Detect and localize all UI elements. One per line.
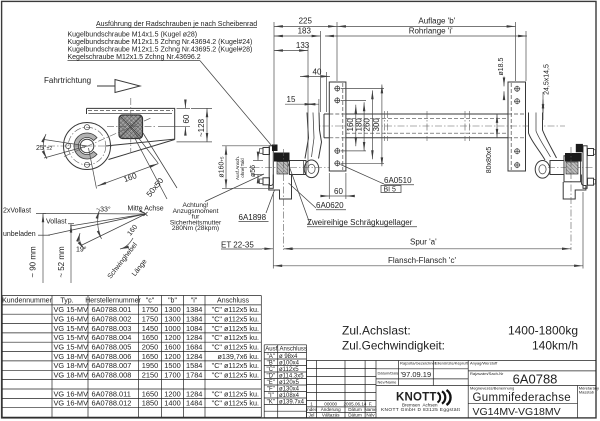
svg-text:6A0788.004: 6A0788.004 (92, 333, 132, 342)
svg-text:VG 16-MV: VG 16-MV (54, 399, 89, 408)
svg-text:Achsen: Achsen (423, 403, 439, 408)
svg-text:19°: 19° (76, 246, 87, 254)
svg-text:Fahrtrichtung: Fahrtrichtung (44, 76, 91, 85)
svg-text:"C" ø112x5 ku.: "C" ø112x5 ku. (212, 324, 259, 333)
svg-text:"E": "E" (267, 380, 275, 386)
svg-text:6A0620: 6A0620 (316, 201, 344, 210)
svg-text:6A0788.012: 6A0788.012 (92, 399, 132, 408)
svg-text:ø 98x4: ø 98x4 (279, 354, 298, 360)
svg-text:1300: 1300 (164, 305, 180, 314)
svg-text:Index: Index (306, 407, 318, 412)
svg-text:ohne Takl: ohne Takl (240, 158, 245, 177)
svg-text:"D": "D" (267, 373, 276, 379)
svg-text:Ausführung der Radschrauben: Ausführung der Radschrauben je nach Sche… (96, 21, 257, 28)
svg-text:1784: 1784 (186, 371, 202, 380)
svg-text:Rajzszám/Sach-Nr: Rajzszám/Sach-Nr (470, 371, 504, 376)
svg-text:Mitte Achse: Mitte Achse (128, 206, 164, 213)
svg-text:VG 18-MV: VG 18-MV (54, 361, 89, 370)
svg-text:Rajzolta/Gezeichnet: Rajzolta/Gezeichnet (400, 361, 437, 366)
svg-text:1200: 1200 (164, 352, 180, 361)
svg-text:VG 15-MV: VG 15-MV (54, 305, 89, 314)
svg-text:Név: Név (366, 413, 375, 418)
svg-text:6A0788.005: 6A0788.005 (92, 343, 132, 352)
svg-text:VG 16-MV: VG 16-MV (54, 315, 89, 324)
svg-text:280Nm (28kpm): 280Nm (28kpm) (172, 225, 219, 232)
svg-text:1950: 1950 (142, 361, 158, 370)
svg-text:"C" ø112x5 ku.: "C" ø112x5 ku. (212, 361, 259, 370)
svg-text:1: 1 (310, 401, 313, 406)
svg-text:Spur 'a': Spur 'a' (410, 238, 437, 247)
svg-text:"C" ø112x5 ku.: "C" ø112x5 ku. (212, 305, 259, 314)
svg-text:ø112x5: ø112x5 (279, 367, 299, 373)
svg-text:ø120x5: ø120x5 (279, 380, 300, 386)
svg-text:1750: 1750 (142, 305, 158, 314)
svg-text:~ 52 mm: ~ 52 mm (57, 246, 66, 278)
svg-text:1284: 1284 (186, 333, 202, 342)
svg-text:ø139.7x4: ø139.7x4 (279, 399, 305, 405)
svg-text:15: 15 (287, 95, 296, 104)
svg-text:Dátum: Dátum (348, 407, 362, 412)
svg-text:ø130x4: ø130x4 (279, 386, 300, 392)
svg-text:"i": "i" (191, 298, 198, 305)
svg-text:1484: 1484 (186, 399, 202, 408)
svg-text:60: 60 (334, 187, 343, 196)
svg-text:VG 18-MV: VG 18-MV (54, 371, 89, 380)
svg-text:"K": "K" (267, 399, 275, 405)
svg-text:80x80x5: 80x80x5 (486, 147, 493, 174)
svg-text:Anschluss: Anschluss (217, 298, 249, 305)
svg-text:"C" ø112x5 ku.: "C" ø112x5 ku. (212, 399, 259, 408)
svg-text:6A0788.011: 6A0788.011 (92, 389, 131, 398)
svg-text:1650: 1650 (142, 389, 158, 398)
svg-text:6A0788.001: 6A0788.001 (92, 305, 132, 314)
svg-text:1000: 1000 (164, 324, 180, 333)
svg-text:ø108x4: ø108x4 (279, 393, 300, 399)
svg-text:Ellenörizte/Képruft: Ellenörizte/Képruft (435, 361, 469, 366)
svg-text:6A0788.008: 6A0788.008 (92, 371, 132, 380)
svg-text:2150: 2150 (142, 371, 158, 380)
svg-text:VG14MV-VG18MV: VG14MV-VG18MV (473, 406, 561, 418)
svg-text:2050: 2050 (142, 343, 158, 352)
svg-text:24,5x14,5: 24,5x14,5 (544, 64, 551, 95)
svg-text:2005.06.14: 2005.06.14 (344, 401, 367, 406)
svg-text:133: 133 (296, 41, 310, 50)
svg-text:BI 5: BI 5 (384, 187, 397, 194)
svg-text:"b": "b" (168, 298, 177, 305)
svg-text:Anyag/Werstoff: Anyag/Werstoff (470, 361, 498, 366)
svg-text:"B": "B" (267, 360, 275, 366)
svg-text:6A0788: 6A0788 (513, 372, 558, 387)
svg-text:1500: 1500 (164, 361, 180, 370)
svg-text:"C": "C" (267, 367, 276, 373)
svg-text:Typ.: Typ. (60, 298, 73, 305)
svg-text:Megnevezés/Benennung: Megnevezés/Benennung (470, 386, 514, 391)
svg-text:Flansch-Flansch 'c': Flansch-Flansch 'c' (388, 256, 456, 265)
svg-text:1384: 1384 (186, 305, 202, 314)
svg-text:Dátum/Date: Dátum/Date (378, 371, 400, 376)
svg-text:1650: 1650 (142, 333, 158, 342)
svg-text:Auflage 'b': Auflage 'b' (418, 17, 455, 26)
svg-text:140km/h: 140km/h (532, 339, 578, 353)
svg-text:"F": "F" (267, 386, 275, 392)
svg-text:6A0788.003: 6A0788.003 (92, 324, 132, 333)
svg-text:VG 16-MV: VG 16-MV (54, 389, 89, 398)
svg-text:6A0788.006: 6A0788.006 (92, 352, 132, 361)
svg-text:6A0788.002: 6A0788.002 (92, 315, 132, 324)
svg-text:1450: 1450 (142, 324, 158, 333)
svg-text:1284: 1284 (186, 352, 202, 361)
svg-text:1200: 1200 (164, 333, 180, 342)
svg-text:6A0510: 6A0510 (384, 176, 412, 185)
svg-text:Név/Name: Név/Name (378, 379, 398, 384)
svg-text:ø100x4: ø100x4 (279, 360, 300, 366)
svg-text:unbeladen: unbeladen (3, 231, 36, 238)
svg-text:1700: 1700 (164, 371, 180, 380)
svg-text:260: 260 (363, 118, 372, 132)
svg-text:"C" ø112x5 ku.: "C" ø112x5 ku. (212, 389, 259, 398)
svg-text:Kugelbundschraube M14x1.5 (K: Kugelbundschraube M14x1.5 (Kugel ø28) (68, 31, 198, 38)
svg-text:1084: 1084 (186, 324, 202, 333)
svg-text:225: 225 (299, 17, 313, 26)
svg-text:Zweireihige Schrägkugellager: Zweireihige Schrägkugellager (307, 218, 413, 227)
svg-text:Name: Name (364, 407, 377, 412)
svg-text:1750: 1750 (142, 315, 158, 324)
svg-text:VG 18-MV: VG 18-MV (54, 352, 89, 361)
svg-text:ø139,7x6 ku.: ø139,7x6 ku. (217, 352, 259, 361)
svg-text:"C" ø112x5 ku.: "C" ø112x5 ku. (212, 315, 259, 324)
svg-text:Herstellernummer: Herstellernummer (85, 298, 141, 305)
svg-text:F.: F. (369, 401, 373, 406)
svg-text:Dátum: Dátum (348, 413, 362, 418)
svg-text:1650: 1650 (142, 352, 158, 361)
svg-text:"C" ø112x5 ku.: "C" ø112x5 ku. (212, 343, 259, 352)
svg-text:300: 300 (372, 118, 381, 132)
svg-text:ET 22-35: ET 22-35 (221, 240, 254, 249)
svg-text:1400: 1400 (164, 399, 180, 408)
svg-text:1384: 1384 (186, 315, 202, 324)
svg-text:Jel: Jel (309, 413, 315, 418)
svg-text:1300: 1300 (164, 315, 180, 324)
svg-text:"C" ø112x5 ku.: "C" ø112x5 ku. (212, 333, 259, 342)
svg-text:VG 15-MV: VG 15-MV (54, 333, 89, 342)
svg-text:Gummifederachse: Gummifederachse (473, 392, 571, 404)
svg-text:"I": "I" (268, 393, 274, 399)
svg-text:Váltazás: Váltazás (322, 413, 340, 418)
svg-text:Kegelschraube M12x1.5 Zchng: Kegelschraube M12x1.5 Zchng Nr.43696.2 (68, 54, 201, 61)
svg-text:Anschluss: Anschluss (280, 347, 307, 353)
svg-text:~128: ~128 (197, 118, 206, 137)
svg-text:25°±2: 25°±2 (36, 144, 52, 152)
svg-text:VG 15-MV: VG 15-MV (54, 324, 89, 333)
svg-text:1684: 1684 (186, 343, 202, 352)
svg-text:1400-1800kg: 1400-1800kg (508, 324, 578, 338)
svg-text:ø18.5: ø18.5 (498, 57, 505, 75)
svg-text:Zul.Achslast:: Zul.Achslast: (342, 324, 411, 338)
svg-text:~33°: ~33° (96, 206, 111, 214)
svg-text:1284: 1284 (186, 389, 202, 398)
svg-text:Rohrlange 'i': Rohrlange 'i' (409, 26, 453, 35)
svg-text:KNOTT GmbH D 83125 Eggstä: KNOTT GmbH D 83125 Eggstätt (381, 407, 461, 413)
svg-text:VG 15-MV: VG 15-MV (54, 343, 89, 352)
svg-text:Kugelbundschraube M12x1.5 Zc: Kugelbundschraube M12x1.5 Zchng Nr.43695… (68, 46, 253, 53)
svg-text:Masstab: Masstab (579, 390, 595, 395)
svg-text:60: 60 (182, 114, 191, 123)
svg-text:"C" ø112x5 ku.: "C" ø112x5 ku. (212, 371, 259, 380)
svg-text:ø114.3x5: ø114.3x5 (279, 373, 304, 379)
svg-text:Bremsen: Bremsen (402, 403, 421, 408)
svg-text:Vollast: Vollast (46, 218, 67, 225)
svg-text:183: 183 (298, 26, 312, 35)
svg-text:40: 40 (313, 67, 322, 76)
svg-text:Änderung: Änderung (321, 406, 341, 412)
svg-text:ø160+5: ø160+5 (219, 156, 226, 178)
svg-text:6A1898: 6A1898 (239, 213, 267, 222)
svg-text:Kugelbundschraube M12x1.5 Zc: Kugelbundschraube M12x1.5 Zchng Nr.43694… (68, 39, 253, 46)
svg-text:6A0788.007: 6A0788.007 (92, 361, 132, 370)
svg-text:00000: 00000 (324, 401, 337, 406)
svg-text:1850: 1850 (142, 399, 158, 408)
svg-text:2xVollast: 2xVollast (3, 208, 31, 215)
svg-text:1200: 1200 (164, 389, 180, 398)
svg-text:Kundennummer: Kundennummer (2, 298, 52, 305)
svg-text:ø56: ø56 (250, 165, 257, 177)
svg-text:1600: 1600 (164, 343, 180, 352)
svg-text:~ 90 mm: ~ 90 mm (29, 246, 38, 278)
svg-text:"c": "c" (146, 298, 155, 305)
svg-text:'97.09.19: '97.09.19 (401, 370, 432, 379)
svg-text:Zul.Gechwindigkeit:: Zul.Gechwindigkeit: (342, 339, 445, 353)
svg-text:1584: 1584 (186, 361, 202, 370)
svg-text:"A": "A" (267, 354, 275, 360)
svg-text:Ausf.: Ausf. (265, 347, 279, 353)
